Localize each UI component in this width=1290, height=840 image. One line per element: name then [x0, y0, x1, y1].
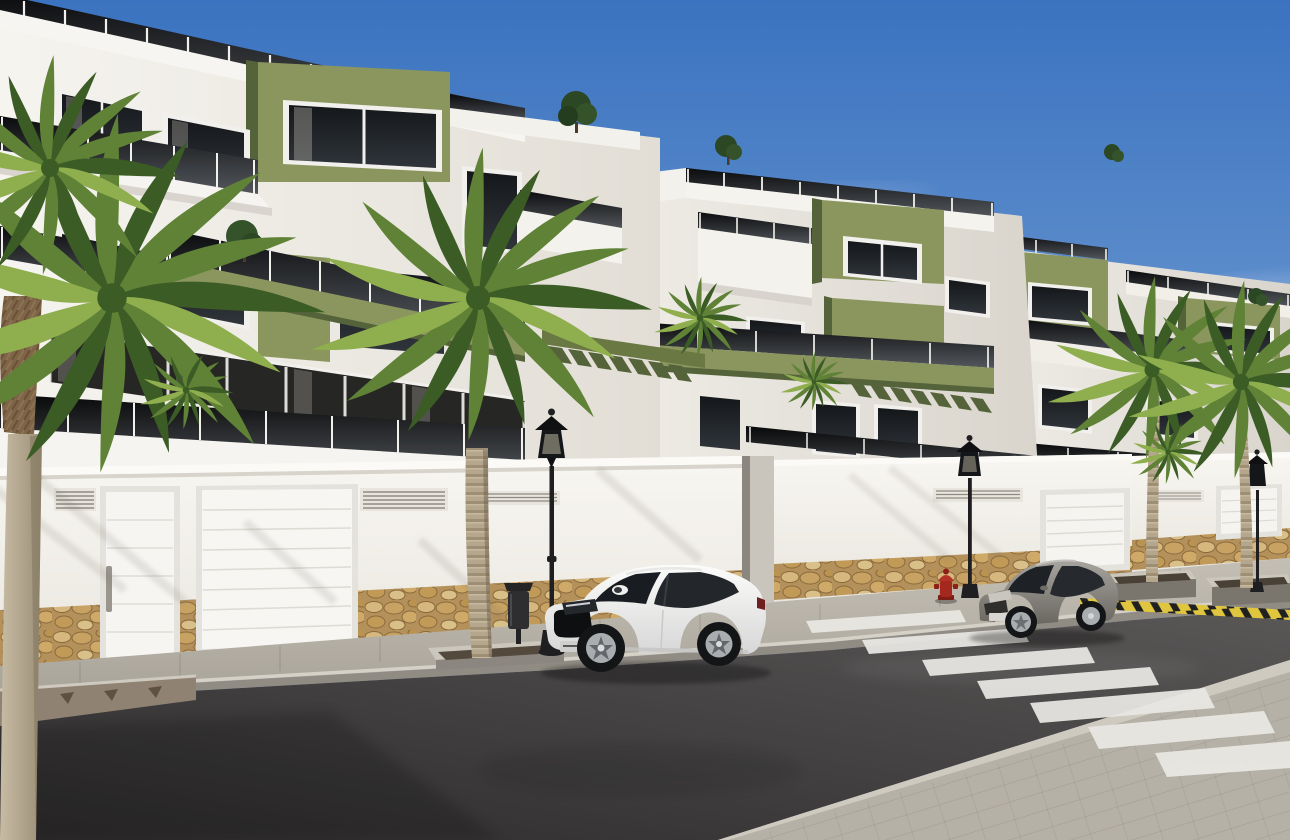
- vent-grille: [933, 488, 1023, 502]
- ground-floor-opening: [700, 396, 740, 450]
- render-viewport: Photorealistic architectural render of a…: [0, 0, 1290, 840]
- street-scene: [0, 0, 1290, 840]
- green-accent-panel: [812, 198, 822, 284]
- window: [945, 276, 990, 318]
- townhouse-block-center: [622, 168, 1038, 472]
- car-wheel: [1005, 606, 1037, 638]
- car-wheel: [697, 622, 741, 666]
- car-wheel: [577, 624, 625, 672]
- car-wheel: [1076, 601, 1106, 631]
- garage-door: [196, 484, 358, 656]
- window: [843, 236, 922, 284]
- vent-grille: [360, 488, 448, 511]
- window: [1028, 282, 1092, 326]
- window: [283, 100, 442, 172]
